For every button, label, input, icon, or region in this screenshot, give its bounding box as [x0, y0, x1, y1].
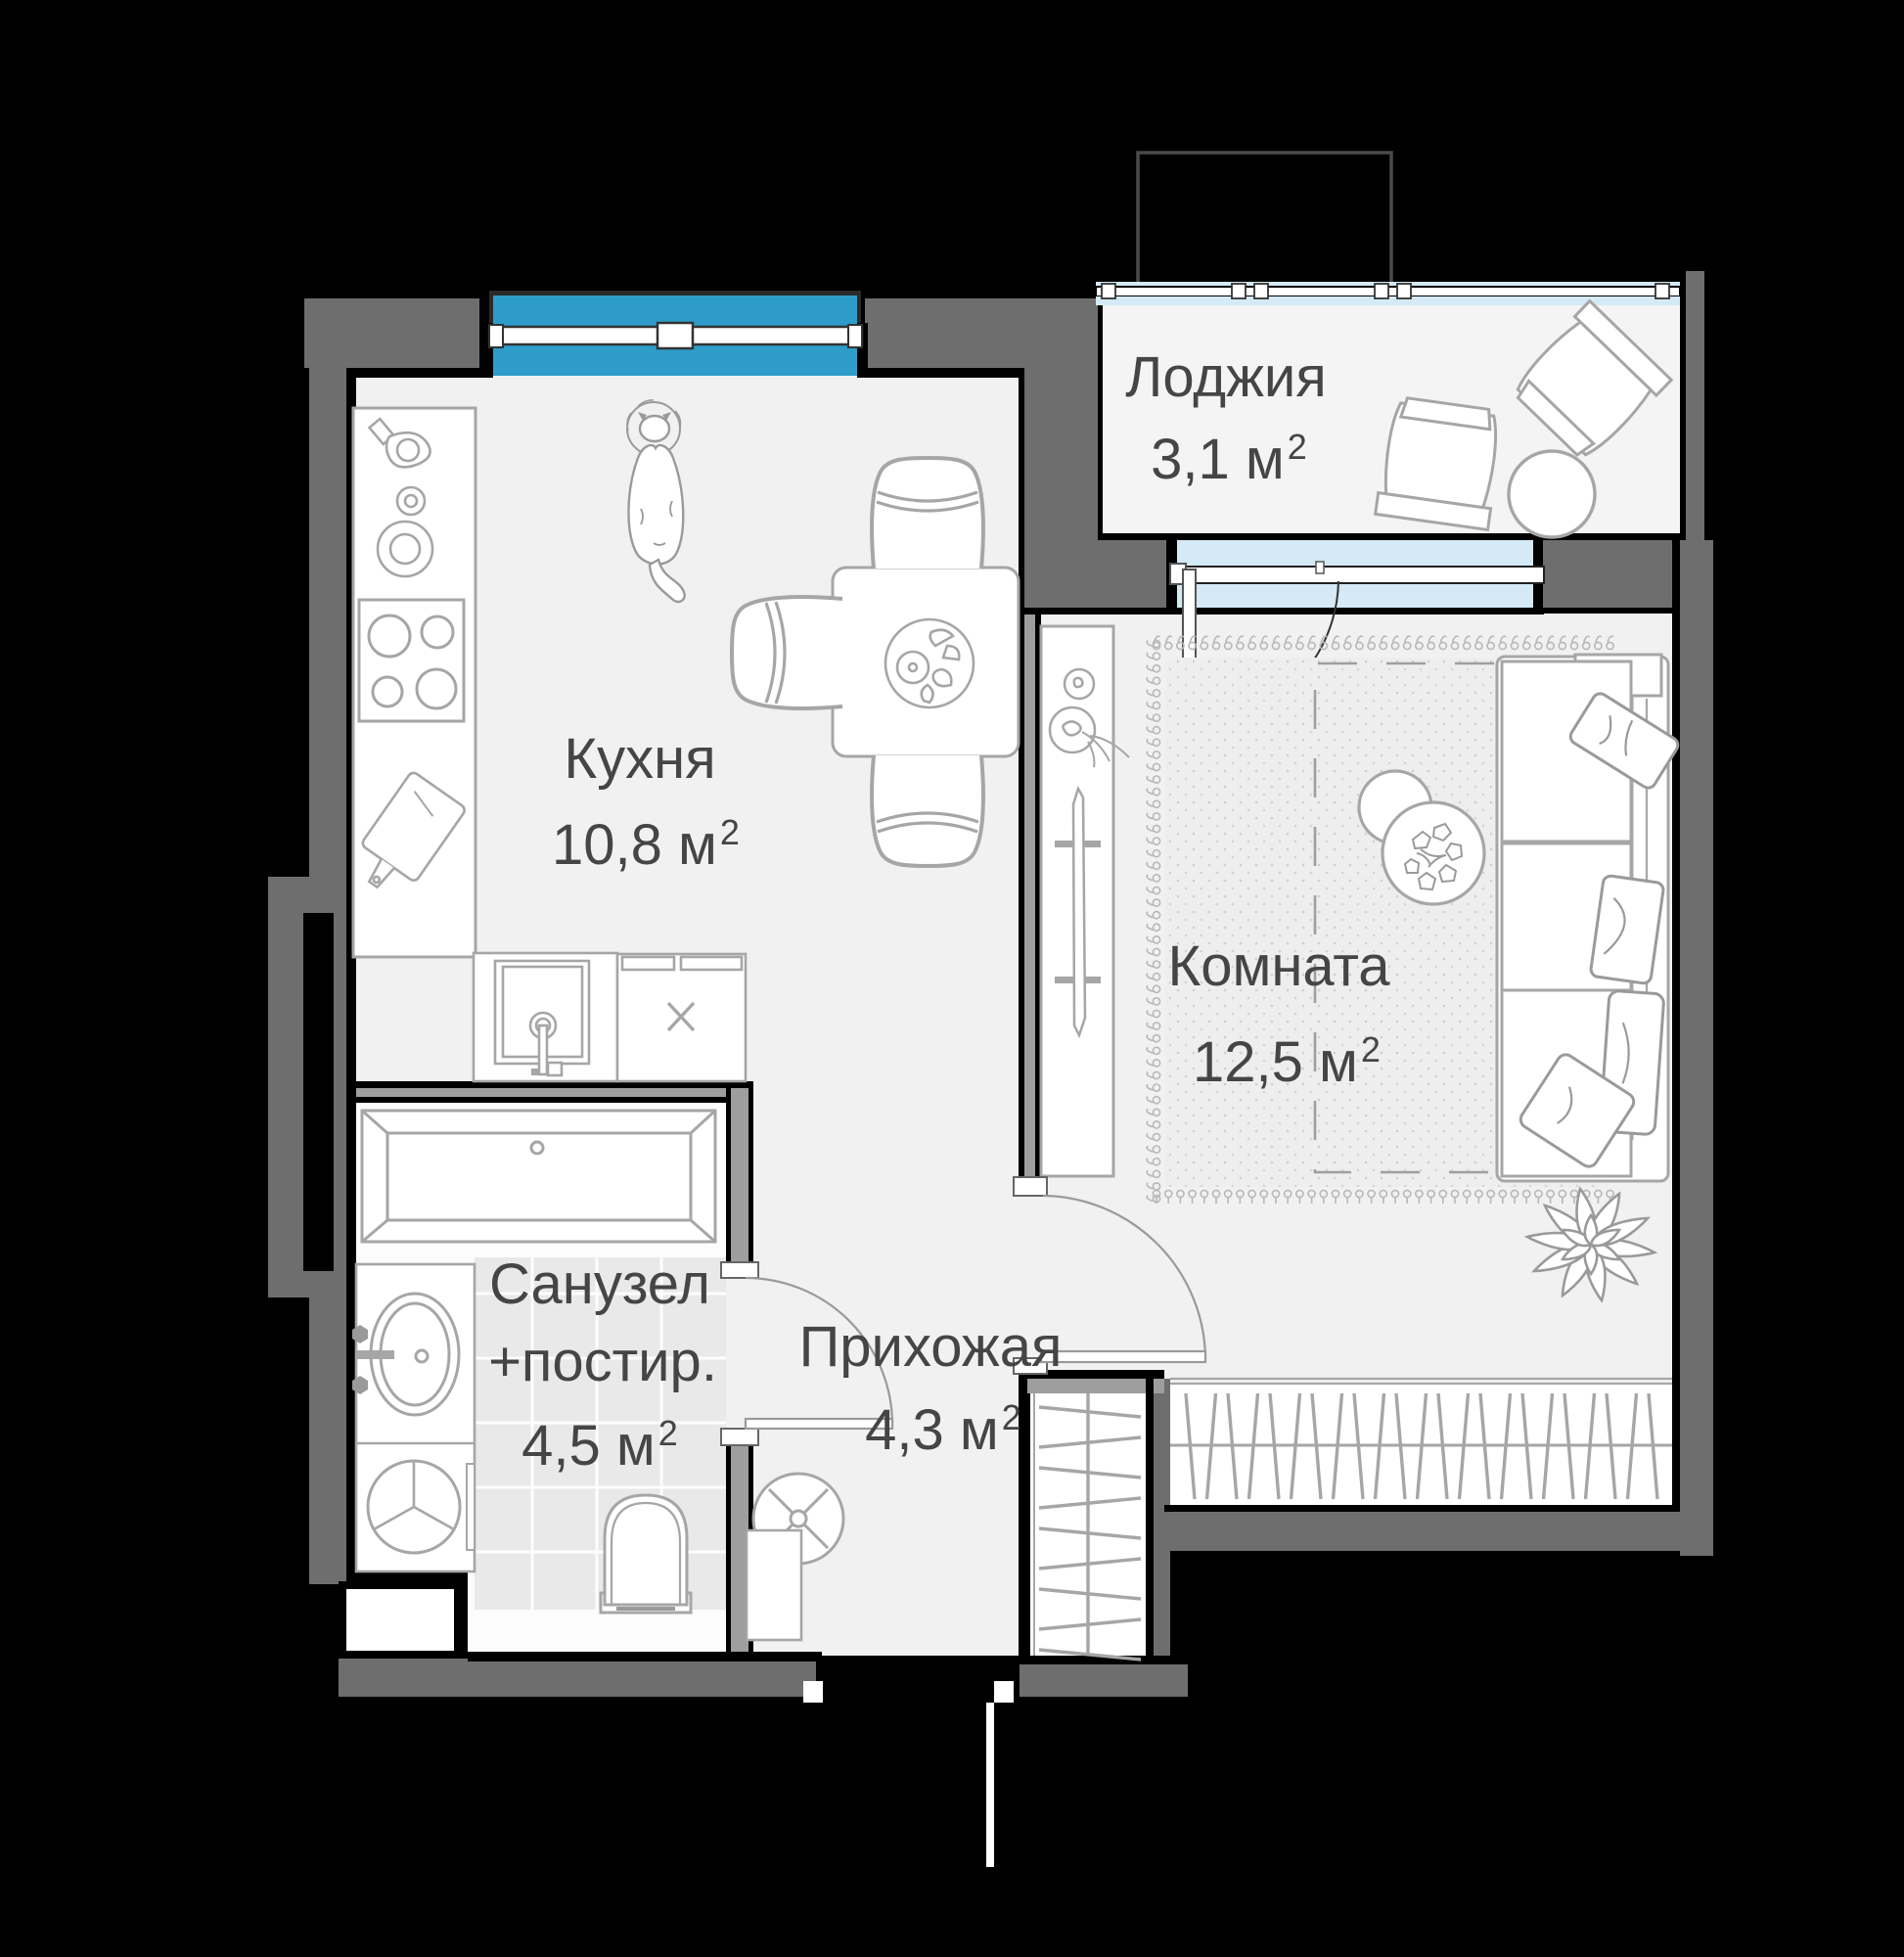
svg-text:Прихожая: Прихожая: [799, 1315, 1063, 1379]
svg-text:3,1 м2: 3,1 м2: [1151, 427, 1307, 491]
svg-text:4,5 м2: 4,5 м2: [521, 1413, 678, 1478]
svg-text:Санузел: Санузел: [489, 1252, 710, 1316]
svg-text:10,8 м2: 10,8 м2: [552, 812, 740, 877]
svg-text:4,3 м2: 4,3 м2: [865, 1397, 1021, 1462]
svg-text:Кухня: Кухня: [564, 727, 715, 791]
svg-text:12,5 м2: 12,5 м2: [1193, 1029, 1381, 1094]
svg-text:Лоджия: Лоджия: [1125, 345, 1327, 409]
svg-text:+постир.: +постир.: [488, 1330, 717, 1393]
svg-text:Комната: Комната: [1167, 934, 1390, 998]
